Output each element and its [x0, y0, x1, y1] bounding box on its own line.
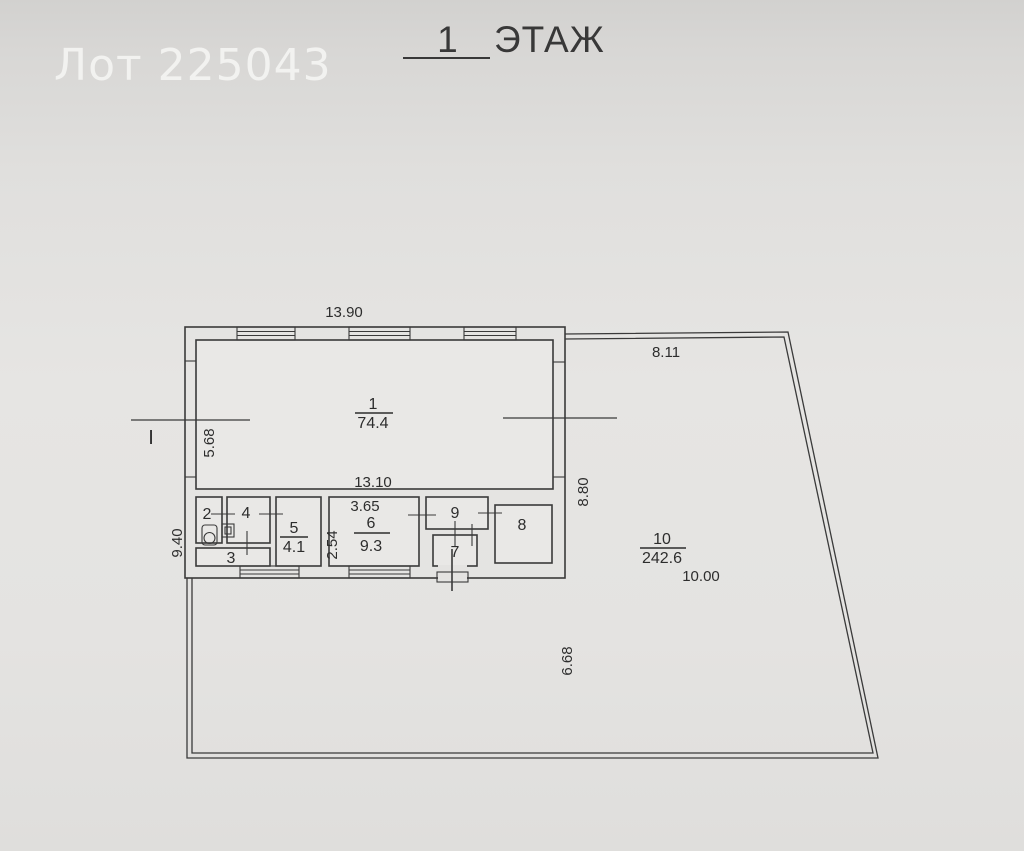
dim-left-outer: 9.40 [169, 528, 186, 557]
lot-watermark: Лот 225043 [54, 44, 332, 88]
room-2-label: 2 [203, 506, 212, 523]
window-top-3 [464, 327, 516, 340]
svg-text:10: 10 [653, 531, 671, 548]
svg-text:9.3: 9.3 [360, 538, 382, 555]
section-label: I [148, 427, 154, 449]
svg-text:74.4: 74.4 [357, 415, 388, 432]
dim-building-top: 13.90 [325, 304, 363, 321]
window-top-1 [237, 327, 295, 340]
window-bottom-1 [240, 566, 299, 578]
scanned-floor-plan-page: Лот 225043 1 ЭТАЖ [0, 0, 1024, 851]
room-3-label: 3 [227, 550, 236, 567]
dim-site-top: 8.11 [652, 344, 680, 361]
room-8-label: 8 [518, 517, 527, 534]
room-7-label: 7 [451, 544, 460, 561]
svg-text:5: 5 [290, 520, 299, 537]
window-top-2 [349, 327, 410, 340]
dim-site-left-lower: 6.68 [559, 646, 576, 675]
dim-room6-top: 3.65 [350, 498, 379, 515]
window-bottom-2 [349, 566, 410, 578]
floor-plan-drawing: 1 ЭТАЖ [0, 0, 1024, 851]
dim-site-lower: 10.00 [682, 568, 720, 585]
svg-text:6: 6 [367, 515, 376, 532]
room-8-walls [495, 505, 552, 563]
dim-room6-height: 2.54 [324, 530, 341, 559]
svg-text:242.6: 242.6 [642, 550, 682, 567]
page-title: 1 ЭТАЖ [437, 19, 605, 60]
dim-site-right-upper: 8.80 [575, 477, 592, 506]
dim-room1-bottom: 13.10 [354, 474, 392, 491]
room-9-label: 9 [451, 505, 460, 522]
dim-room1-height: 5.68 [201, 428, 218, 457]
svg-text:1: 1 [369, 396, 378, 413]
svg-text:4.1: 4.1 [283, 539, 305, 556]
room-4-label: 4 [242, 505, 251, 522]
room-10-label: 10 242.6 [640, 531, 686, 567]
